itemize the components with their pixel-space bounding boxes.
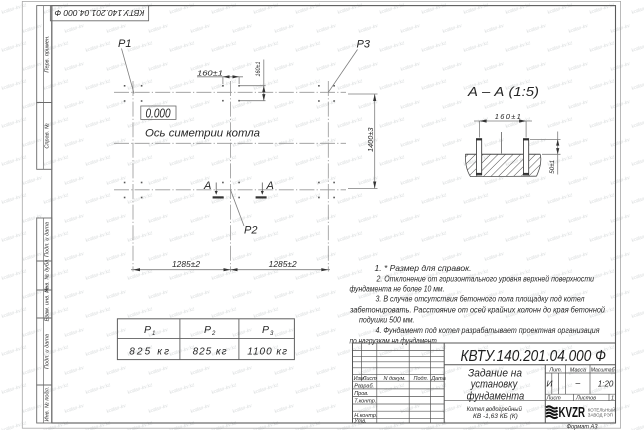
svg-text:А – А (1:5): А – А (1:5) bbox=[467, 85, 539, 99]
svg-text:Котел водогрейный: Котел водогрейный bbox=[467, 405, 522, 413]
svg-text:1400±3: 1400±3 bbox=[368, 127, 375, 152]
svg-text:Лист: Лист bbox=[546, 396, 562, 402]
svg-text:160±1: 160±1 bbox=[197, 71, 223, 78]
svg-text:0.000: 0.000 bbox=[146, 106, 171, 120]
svg-text:КВТУ.140.201.04.000 Ф: КВТУ.140.201.04.000 Ф bbox=[54, 8, 145, 17]
svg-text:P: P bbox=[204, 324, 211, 336]
svg-text:160±1: 160±1 bbox=[495, 112, 521, 121]
svg-text:P3: P3 bbox=[357, 39, 371, 51]
svg-text:фундамента: фундамента bbox=[467, 390, 525, 402]
svg-text:забетонировать. Расстояние от: забетонировать. Расстояние от осей крайн… bbox=[349, 305, 605, 314]
svg-text:Ось симетрии котла: Ось симетрии котла bbox=[145, 128, 260, 140]
svg-text:KVZR: KVZR bbox=[559, 404, 586, 421]
svg-text:2: 2 bbox=[211, 331, 216, 337]
svg-text:1285±2: 1285±2 bbox=[269, 260, 298, 269]
svg-text:Дата: Дата bbox=[430, 376, 446, 382]
svg-text:P1: P1 bbox=[118, 38, 131, 50]
svg-text:–: – bbox=[575, 378, 581, 388]
svg-text:КВ -1,63 КБ (К): КВ -1,63 КБ (К) bbox=[473, 413, 518, 420]
svg-text:Пров.: Пров. bbox=[354, 391, 369, 397]
svg-text:1100 кг: 1100 кг bbox=[247, 347, 287, 358]
svg-text:Подп.: Подп. bbox=[414, 376, 429, 382]
svg-text:160±1: 160±1 bbox=[256, 62, 262, 77]
svg-text:Подп. и дата: Подп. и дата bbox=[45, 222, 51, 257]
svg-text:4. Фундамент под котел разраба: 4. Фундамент под котел разрабатывает про… bbox=[376, 326, 601, 335]
svg-text:Разраб.: Разраб. bbox=[354, 384, 374, 390]
svg-text:фундамента не более 10 мм.: фундамента не более 10 мм. bbox=[350, 284, 445, 293]
svg-text:Формат А3: Формат А3 bbox=[567, 424, 599, 430]
svg-text:P: P bbox=[262, 324, 269, 336]
svg-text:А: А bbox=[266, 180, 274, 192]
svg-text:по нагрузкам на фундамент.: по нагрузкам на фундамент. bbox=[350, 337, 439, 346]
svg-text:Взам. инв. №: Взам. инв. № bbox=[45, 287, 51, 322]
svg-text:1:20: 1:20 bbox=[598, 380, 614, 389]
svg-text:подушки 500 мм.: подушки 500 мм. bbox=[359, 315, 415, 324]
svg-text:Лист: Лист bbox=[362, 376, 378, 382]
svg-text:Масштаб: Масштаб bbox=[591, 367, 616, 373]
svg-text:Лит.: Лит. bbox=[548, 367, 562, 373]
svg-text:Перв. примен.: Перв. примен. bbox=[45, 35, 51, 72]
svg-text:ЗАВОД РЭП: ЗАВОД РЭП bbox=[588, 412, 613, 417]
svg-text:P2: P2 bbox=[244, 225, 257, 237]
svg-text:1: 1 bbox=[152, 331, 155, 337]
svg-text:50±1: 50±1 bbox=[550, 160, 556, 174]
svg-text:P: P bbox=[144, 324, 151, 336]
svg-text:установку: установку bbox=[470, 379, 519, 391]
svg-text:КВТУ.140.201.04.000 Ф: КВТУ.140.201.04.000 Ф bbox=[461, 348, 607, 365]
svg-text:Справ. №: Справ. № bbox=[45, 123, 51, 148]
svg-text:Подп. и дата: Подп. и дата bbox=[45, 334, 51, 369]
svg-text:Масса: Масса bbox=[570, 367, 586, 373]
svg-text:Инв. № подл.: Инв. № подл. bbox=[45, 387, 51, 422]
svg-text:3. В случае отсутствия бетонно: 3. В случае отсутствия бетонного пола пл… bbox=[376, 295, 585, 304]
svg-text:Листов: Листов bbox=[575, 396, 596, 402]
svg-text:N докум.: N докум. bbox=[384, 376, 406, 382]
svg-text:Утв.: Утв. bbox=[353, 419, 367, 425]
svg-text:1. * Размер для справок.: 1. * Размер для справок. bbox=[375, 264, 472, 273]
svg-text:А: А bbox=[203, 180, 211, 192]
svg-text:1: 1 bbox=[611, 396, 614, 402]
svg-text:Т.контр.: Т.контр. bbox=[354, 399, 376, 405]
svg-text:2. Отклонение от горизонтально: 2. Отклонение от горизонтального уровня … bbox=[376, 275, 595, 284]
svg-text:825 кг: 825 кг bbox=[193, 347, 227, 358]
svg-text:И: И bbox=[546, 379, 553, 389]
svg-text:Задание на: Задание на bbox=[468, 367, 522, 379]
svg-text:1285±2: 1285±2 bbox=[172, 260, 201, 269]
